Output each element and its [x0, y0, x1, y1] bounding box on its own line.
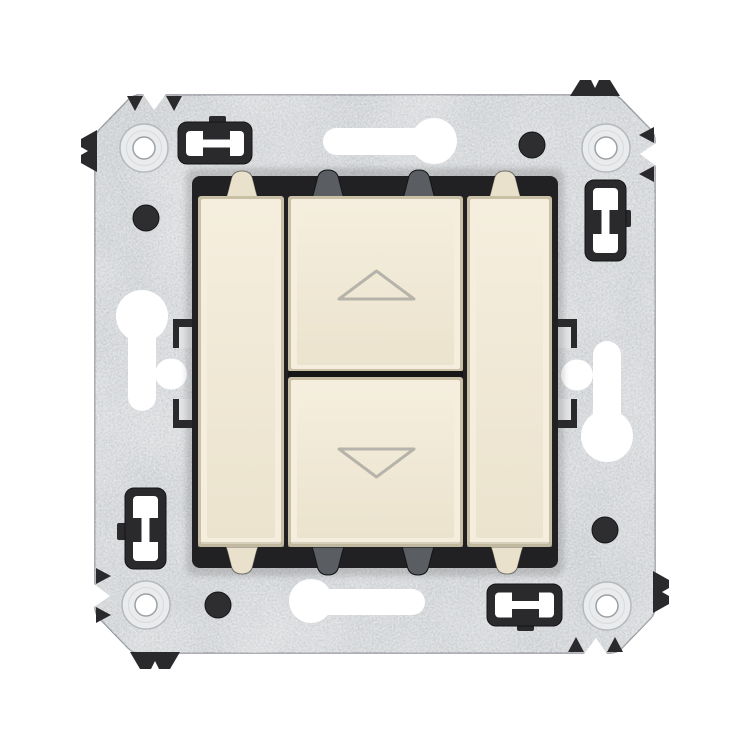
- clip-slot-notch: [203, 148, 230, 157]
- key-face: [297, 205, 454, 365]
- clip-slot-notch: [133, 518, 142, 542]
- clip-slot-notch: [150, 518, 159, 542]
- edge-notch-top: [127, 94, 182, 111]
- clip-slot-notch: [512, 609, 539, 618]
- keyhole-bulge: [116, 290, 168, 342]
- edge-notch-left: [94, 568, 111, 623]
- oval-hole-right: [561, 360, 593, 391]
- up-button: [288, 196, 463, 372]
- bracket-sliver: [173, 327, 179, 348]
- rubber-dot-bottom-left: [205, 592, 231, 618]
- fixing-clip-bottom-right: [487, 584, 562, 631]
- fixing-clip-top-left: [178, 116, 252, 164]
- key-face: [476, 205, 543, 538]
- key-face: [297, 386, 454, 538]
- key-bottom-shade: [288, 542, 463, 547]
- screw-bore: [596, 595, 618, 617]
- key-bottom-shade: [198, 542, 284, 547]
- bracket-sliver: [571, 327, 577, 348]
- key-face: [207, 205, 275, 538]
- keyhole-bulge: [411, 118, 457, 164]
- edge-notch-right: [639, 127, 656, 182]
- bracket-sliver: [173, 399, 179, 420]
- fixing-clip-top-right: [585, 180, 631, 261]
- keyhole-bulge: [581, 410, 633, 462]
- clip-slot-notch: [593, 210, 602, 234]
- rubber-dot-top-right: [519, 132, 545, 158]
- key-bottom-shade: [467, 542, 552, 547]
- bracket-sliver: [571, 399, 577, 420]
- rocker-split-gap: [288, 371, 463, 377]
- rubber-dot-bottom-right: [592, 517, 618, 543]
- clip-slot-notch: [512, 593, 539, 602]
- down-button: [288, 377, 463, 547]
- product-image: [0, 0, 750, 750]
- screw-hole-top-right: [582, 124, 630, 172]
- switch-mechanism: [186, 168, 564, 576]
- screw-hole-bottom-right: [583, 582, 631, 630]
- clip-slot-notch: [203, 131, 230, 140]
- edge-notch-bottom: [568, 637, 623, 654]
- screw-hole-top-left: [120, 124, 168, 172]
- switch-product-render: [0, 0, 750, 750]
- rubber-dot-top-left: [133, 205, 159, 231]
- screw-bore: [595, 137, 617, 159]
- left-key: [198, 196, 284, 547]
- screw-hole-bottom-left: [122, 581, 170, 629]
- oval-hole-left: [155, 359, 187, 390]
- screw-bore: [133, 137, 155, 159]
- screw-bore: [135, 594, 157, 616]
- keyhole-bulge: [289, 579, 333, 623]
- clip-slot-notch: [610, 210, 619, 234]
- right-key: [467, 196, 552, 547]
